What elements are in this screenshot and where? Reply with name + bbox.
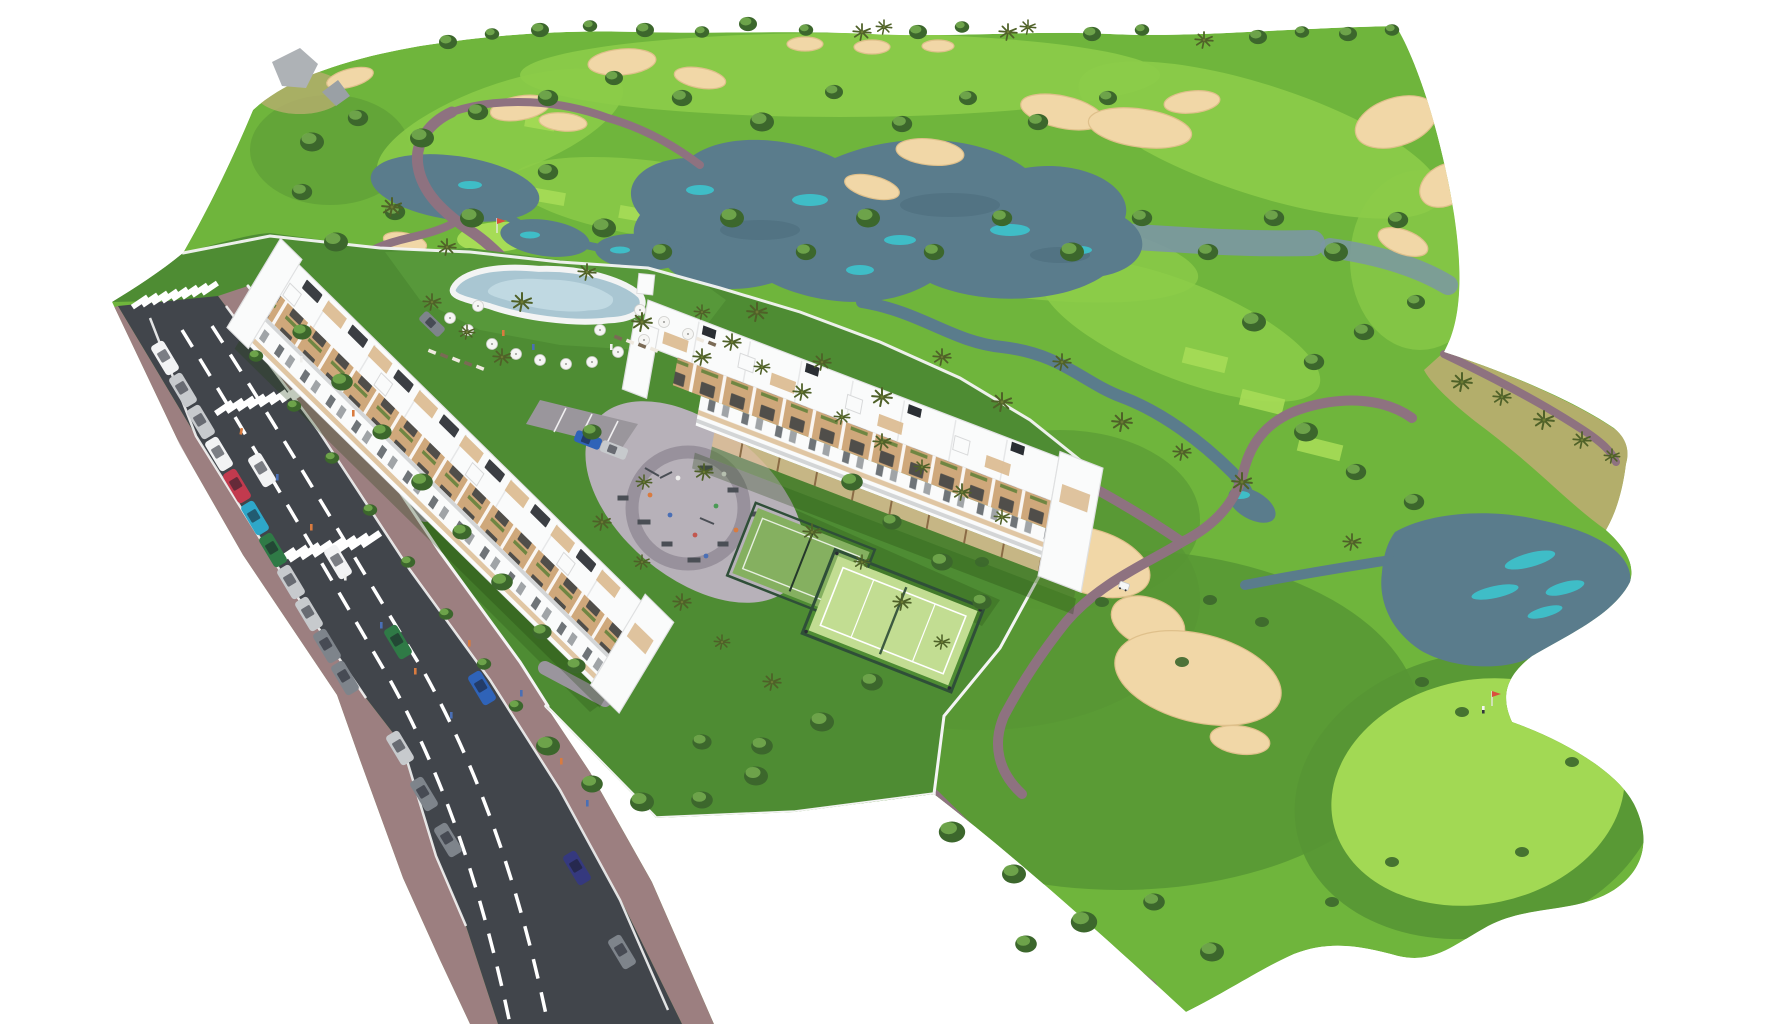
bush [1415,677,1429,687]
umbrella [587,357,598,368]
tree [1324,243,1348,262]
pedestrian [310,524,313,531]
bush [1515,847,1529,857]
pedestrian [414,668,417,675]
bush [1565,757,1579,767]
tree [531,23,549,37]
tree [1249,30,1267,44]
umbrella [487,339,498,350]
garden-tree [692,734,711,749]
garden-tree [882,514,901,529]
pedestrian [586,800,589,807]
tree [1083,27,1101,41]
tree [959,91,977,105]
garden-tree [536,737,560,756]
garden-tree [292,324,311,339]
street-tree [363,504,377,515]
tree [583,20,597,31]
pedestrian [610,344,613,350]
umbrella [445,313,456,324]
tree [1071,912,1097,933]
tree [909,25,927,39]
pedestrian [276,474,279,481]
garden-tree [841,473,863,490]
tree [1385,24,1399,35]
umbrella [595,325,606,336]
tree [439,35,457,49]
pedestrian [352,410,355,417]
garden-tree [582,424,601,439]
pedestrian [532,344,535,350]
tree [720,209,744,228]
tree [856,209,880,228]
street-tree [401,556,415,567]
pedestrian [468,640,471,647]
garden-tree [931,553,953,570]
tree [1060,243,1084,262]
bush [1455,707,1469,717]
tree [1198,244,1218,260]
garden-tree [331,373,353,390]
umbrella [659,317,670,328]
garden-tree [691,791,713,808]
tree [1242,313,1266,332]
tree [652,244,672,260]
bush [1255,617,1269,627]
tree [1002,865,1026,884]
golfer [1482,706,1485,714]
pedestrian [520,690,523,697]
tree [485,28,499,39]
garden-tree [861,673,883,690]
garden-tree [581,775,603,792]
pedestrian [560,758,563,765]
street-tree [287,400,301,411]
tree [1200,943,1224,962]
garden-tree [751,737,773,754]
garden-tree [630,793,654,812]
bush [1203,595,1217,605]
street-tree [509,700,523,711]
bush [1385,857,1399,867]
tree [1099,91,1117,105]
garden-tree [411,473,433,490]
tree [468,104,488,120]
tree [605,71,623,85]
tree [1028,114,1048,130]
tree [460,209,484,228]
tree [825,85,843,99]
pedestrian [380,622,383,629]
street-tree [325,452,339,463]
tree [796,244,816,260]
pedestrian [300,356,303,363]
umbrella [635,305,646,316]
garden-tree [372,424,391,439]
tree [1354,324,1374,340]
pool-pavilion [637,273,655,295]
tree [1294,423,1318,442]
tree [939,822,965,843]
tree [538,164,558,180]
tree [992,210,1012,226]
tree [348,110,368,126]
tree [1346,464,1366,480]
tree [1143,893,1165,910]
pedestrian [502,330,505,336]
tree [1015,935,1037,952]
tree [955,21,969,32]
bush [975,557,989,567]
garden-tree [532,624,551,639]
bush [1325,897,1339,907]
garden-tree [452,524,471,539]
tree [672,90,692,106]
tree [300,133,324,152]
street-tree [439,608,453,619]
umbrella [535,355,546,366]
street-tree [477,658,491,669]
garden-tree [810,713,834,732]
umbrella [511,349,522,360]
tree [924,244,944,260]
bush [1175,657,1189,667]
aerial-render-canvas [0,0,1780,1024]
umbrella [473,301,484,312]
tree [799,24,813,35]
tree [592,219,616,238]
tree [695,26,709,37]
garden-tree [744,767,768,786]
tree [750,113,774,132]
tree [1264,210,1284,226]
tree [1295,26,1309,37]
tree [636,23,654,37]
tree [292,184,312,200]
tree [1339,27,1357,41]
golf-resort-render [0,0,1780,1024]
tree [1404,494,1424,510]
garden-tree [972,594,991,609]
umbrella [561,359,572,370]
umbrella [613,347,624,358]
pedestrian [450,712,453,719]
tree [1135,24,1149,35]
tree [1388,212,1408,228]
umbrella [683,329,694,340]
tree [739,17,757,31]
tree [1304,354,1324,370]
tree [410,129,434,148]
tree [324,233,348,252]
garden-tree [491,573,513,590]
pedestrian [344,574,347,581]
bush [1095,597,1109,607]
street-tree [249,350,263,361]
tree [538,90,558,106]
tree [1132,210,1152,226]
garden-tree [566,658,585,673]
tree [1407,295,1425,309]
tree [892,116,912,132]
